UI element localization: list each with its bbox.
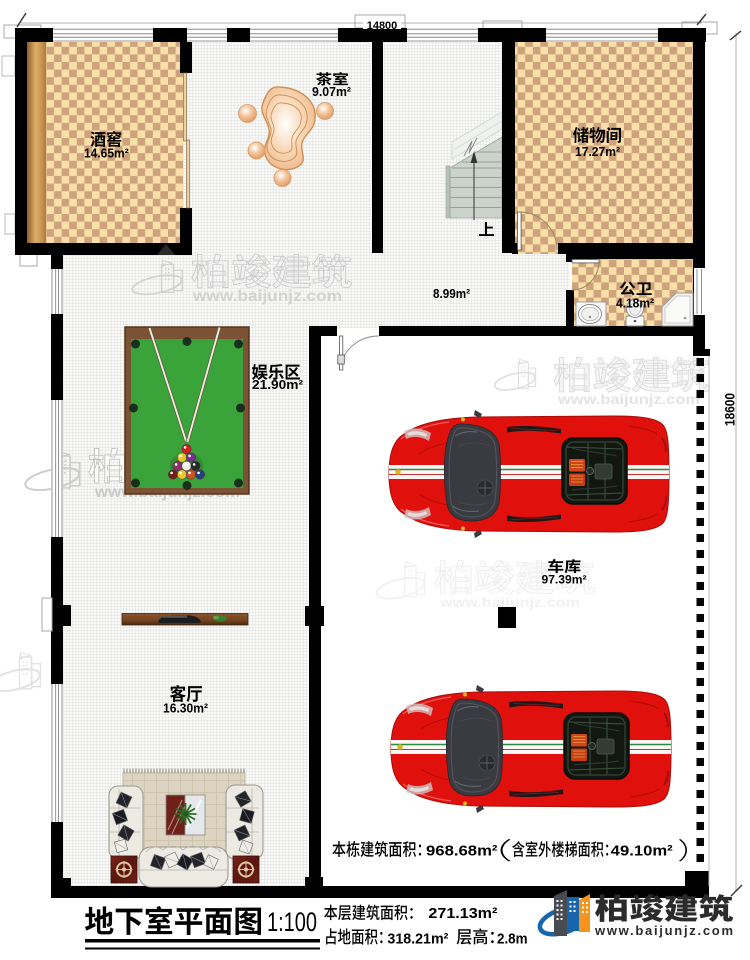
svg-text:14.65m²: 14.65m² — [84, 145, 129, 160]
svg-text:16.30m²: 16.30m² — [163, 701, 209, 716]
svg-text:8.99m²: 8.99m² — [433, 287, 470, 301]
svg-text:97.39m²: 97.39m² — [542, 573, 587, 587]
svg-text:21.90m²: 21.90m² — [252, 377, 304, 392]
svg-text:9.07m²: 9.07m² — [312, 84, 352, 99]
svg-text:49.10m²: 49.10m² — [611, 843, 673, 860]
svg-text:271.13m²: 271.13m² — [428, 905, 497, 922]
svg-text:www.baijunjz.com: www.baijunjz.com — [557, 391, 700, 407]
svg-text:4.18m²: 4.18m² — [616, 296, 655, 311]
svg-text:14800: 14800 — [367, 20, 398, 32]
svg-text:18600: 18600 — [723, 393, 738, 426]
svg-text:17.27m²: 17.27m² — [575, 144, 621, 159]
svg-text:1:100: 1:100 — [267, 907, 317, 937]
svg-text:968.68m²: 968.68m² — [426, 843, 498, 860]
svg-text:2.8m: 2.8m — [497, 931, 528, 948]
svg-text:318.21m²: 318.21m² — [387, 931, 448, 948]
svg-text:www.baijunjz.com: www.baijunjz.com — [192, 288, 342, 305]
